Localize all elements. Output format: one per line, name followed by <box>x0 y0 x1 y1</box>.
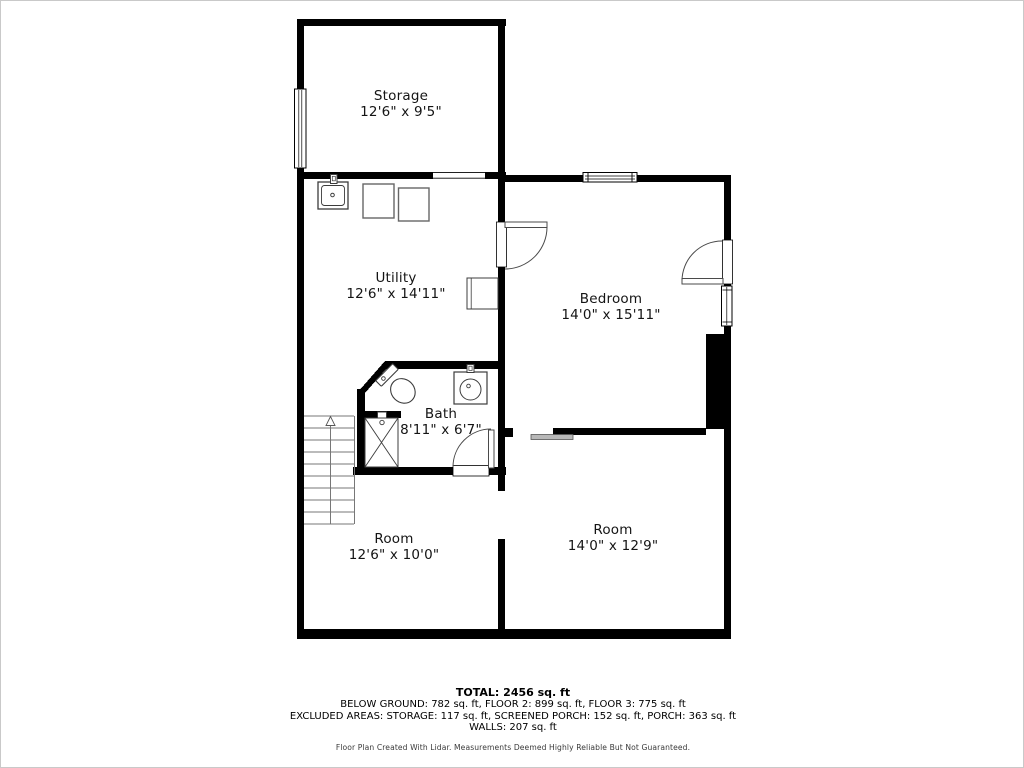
wall-bedroom-top-b <box>635 175 731 182</box>
room-dims-storage: 12'6" x 9'5" <box>360 104 442 120</box>
bedroom-right-door-icon <box>682 241 723 284</box>
room-label-lower-right: Room <box>593 522 632 538</box>
bedroom-left-door-icon <box>505 222 547 269</box>
room-label-storage: Storage <box>374 88 428 104</box>
wall-bath-top <box>385 361 505 369</box>
room-dims-lower-left: 12'6" x 10'0" <box>349 547 440 563</box>
room-label-bedroom: Bedroom <box>580 291 642 307</box>
summary-floors: BELOW GROUND: 782 sq. ft, FLOOR 2: 899 s… <box>1 699 1024 711</box>
bath-sink-icon <box>454 365 487 405</box>
chimney-mass <box>706 334 731 429</box>
area-summary: TOTAL: 2456 sq. ft BELOW GROUND: 782 sq.… <box>1 687 1024 734</box>
wall-divider-lower <box>498 539 505 635</box>
wall-storage-bottom-a <box>297 172 433 179</box>
shower-icon <box>365 412 398 467</box>
wall-storage-right <box>498 19 505 179</box>
room-label-utility: Utility <box>375 270 416 286</box>
storage-window-icon <box>295 89 307 168</box>
wall-left-outer <box>297 172 304 639</box>
wall-divider-mid <box>498 361 505 491</box>
wall-bedroom-bottom <box>553 428 706 435</box>
stairs-up-arrow-icon <box>326 417 335 426</box>
wall-storage-left-upper <box>297 19 304 89</box>
staircase-icon <box>304 416 355 524</box>
wall-utility-bedroom-a <box>498 179 505 222</box>
summary-walls: WALLS: 207 sq. ft <box>1 722 1024 734</box>
wall-bedroom-top-a <box>498 175 585 182</box>
sliding-door-icon <box>531 435 573 440</box>
summary-excluded: EXCLUDED AREAS: STORAGE: 117 sq. ft, SCR… <box>1 711 1024 723</box>
wall-bath-bottom-a <box>353 467 453 475</box>
water-heater-unit-icon <box>467 278 498 309</box>
utility-sink-icon <box>318 175 348 210</box>
room-label-lower-left: Room <box>374 531 413 547</box>
room-dims-utility: 12'6" x 14'11" <box>346 286 445 302</box>
room-dims-lower-right: 14'0" x 12'9" <box>568 538 659 554</box>
wall-bath-left <box>357 389 365 469</box>
bedroom-top-window-icon <box>583 173 637 183</box>
bedroom-left-door-jamb <box>497 222 507 267</box>
wall-utility-bedroom-b <box>498 266 505 361</box>
bedroom-right-window-icon <box>722 286 733 326</box>
floor-plan-drawing: Storage 12'6" x 9'5" Utility 12'6" x 14'… <box>1 1 1024 768</box>
washer-icon <box>363 184 394 218</box>
bedroom-right-door-jamb <box>723 240 733 284</box>
disclaimer-text: Floor Plan Created With Lidar. Measureme… <box>1 743 1024 752</box>
bath-door-jamb <box>453 466 489 477</box>
wall-bedroom-bottom-stub <box>498 428 513 437</box>
wall-bottom-outer <box>297 629 731 639</box>
dryer-icon <box>399 188 430 221</box>
room-dims-bath: 8'11" x 6'7" <box>400 422 482 438</box>
summary-total: TOTAL: 2456 sq. ft <box>1 687 1024 699</box>
room-label-bath: Bath <box>425 406 457 422</box>
wall-storage-top <box>297 19 506 26</box>
storage-doorway-opening <box>433 172 485 179</box>
room-dims-bedroom: 14'0" x 15'11" <box>561 307 660 323</box>
floor-plan-page: Storage 12'6" x 9'5" Utility 12'6" x 14'… <box>0 0 1024 768</box>
